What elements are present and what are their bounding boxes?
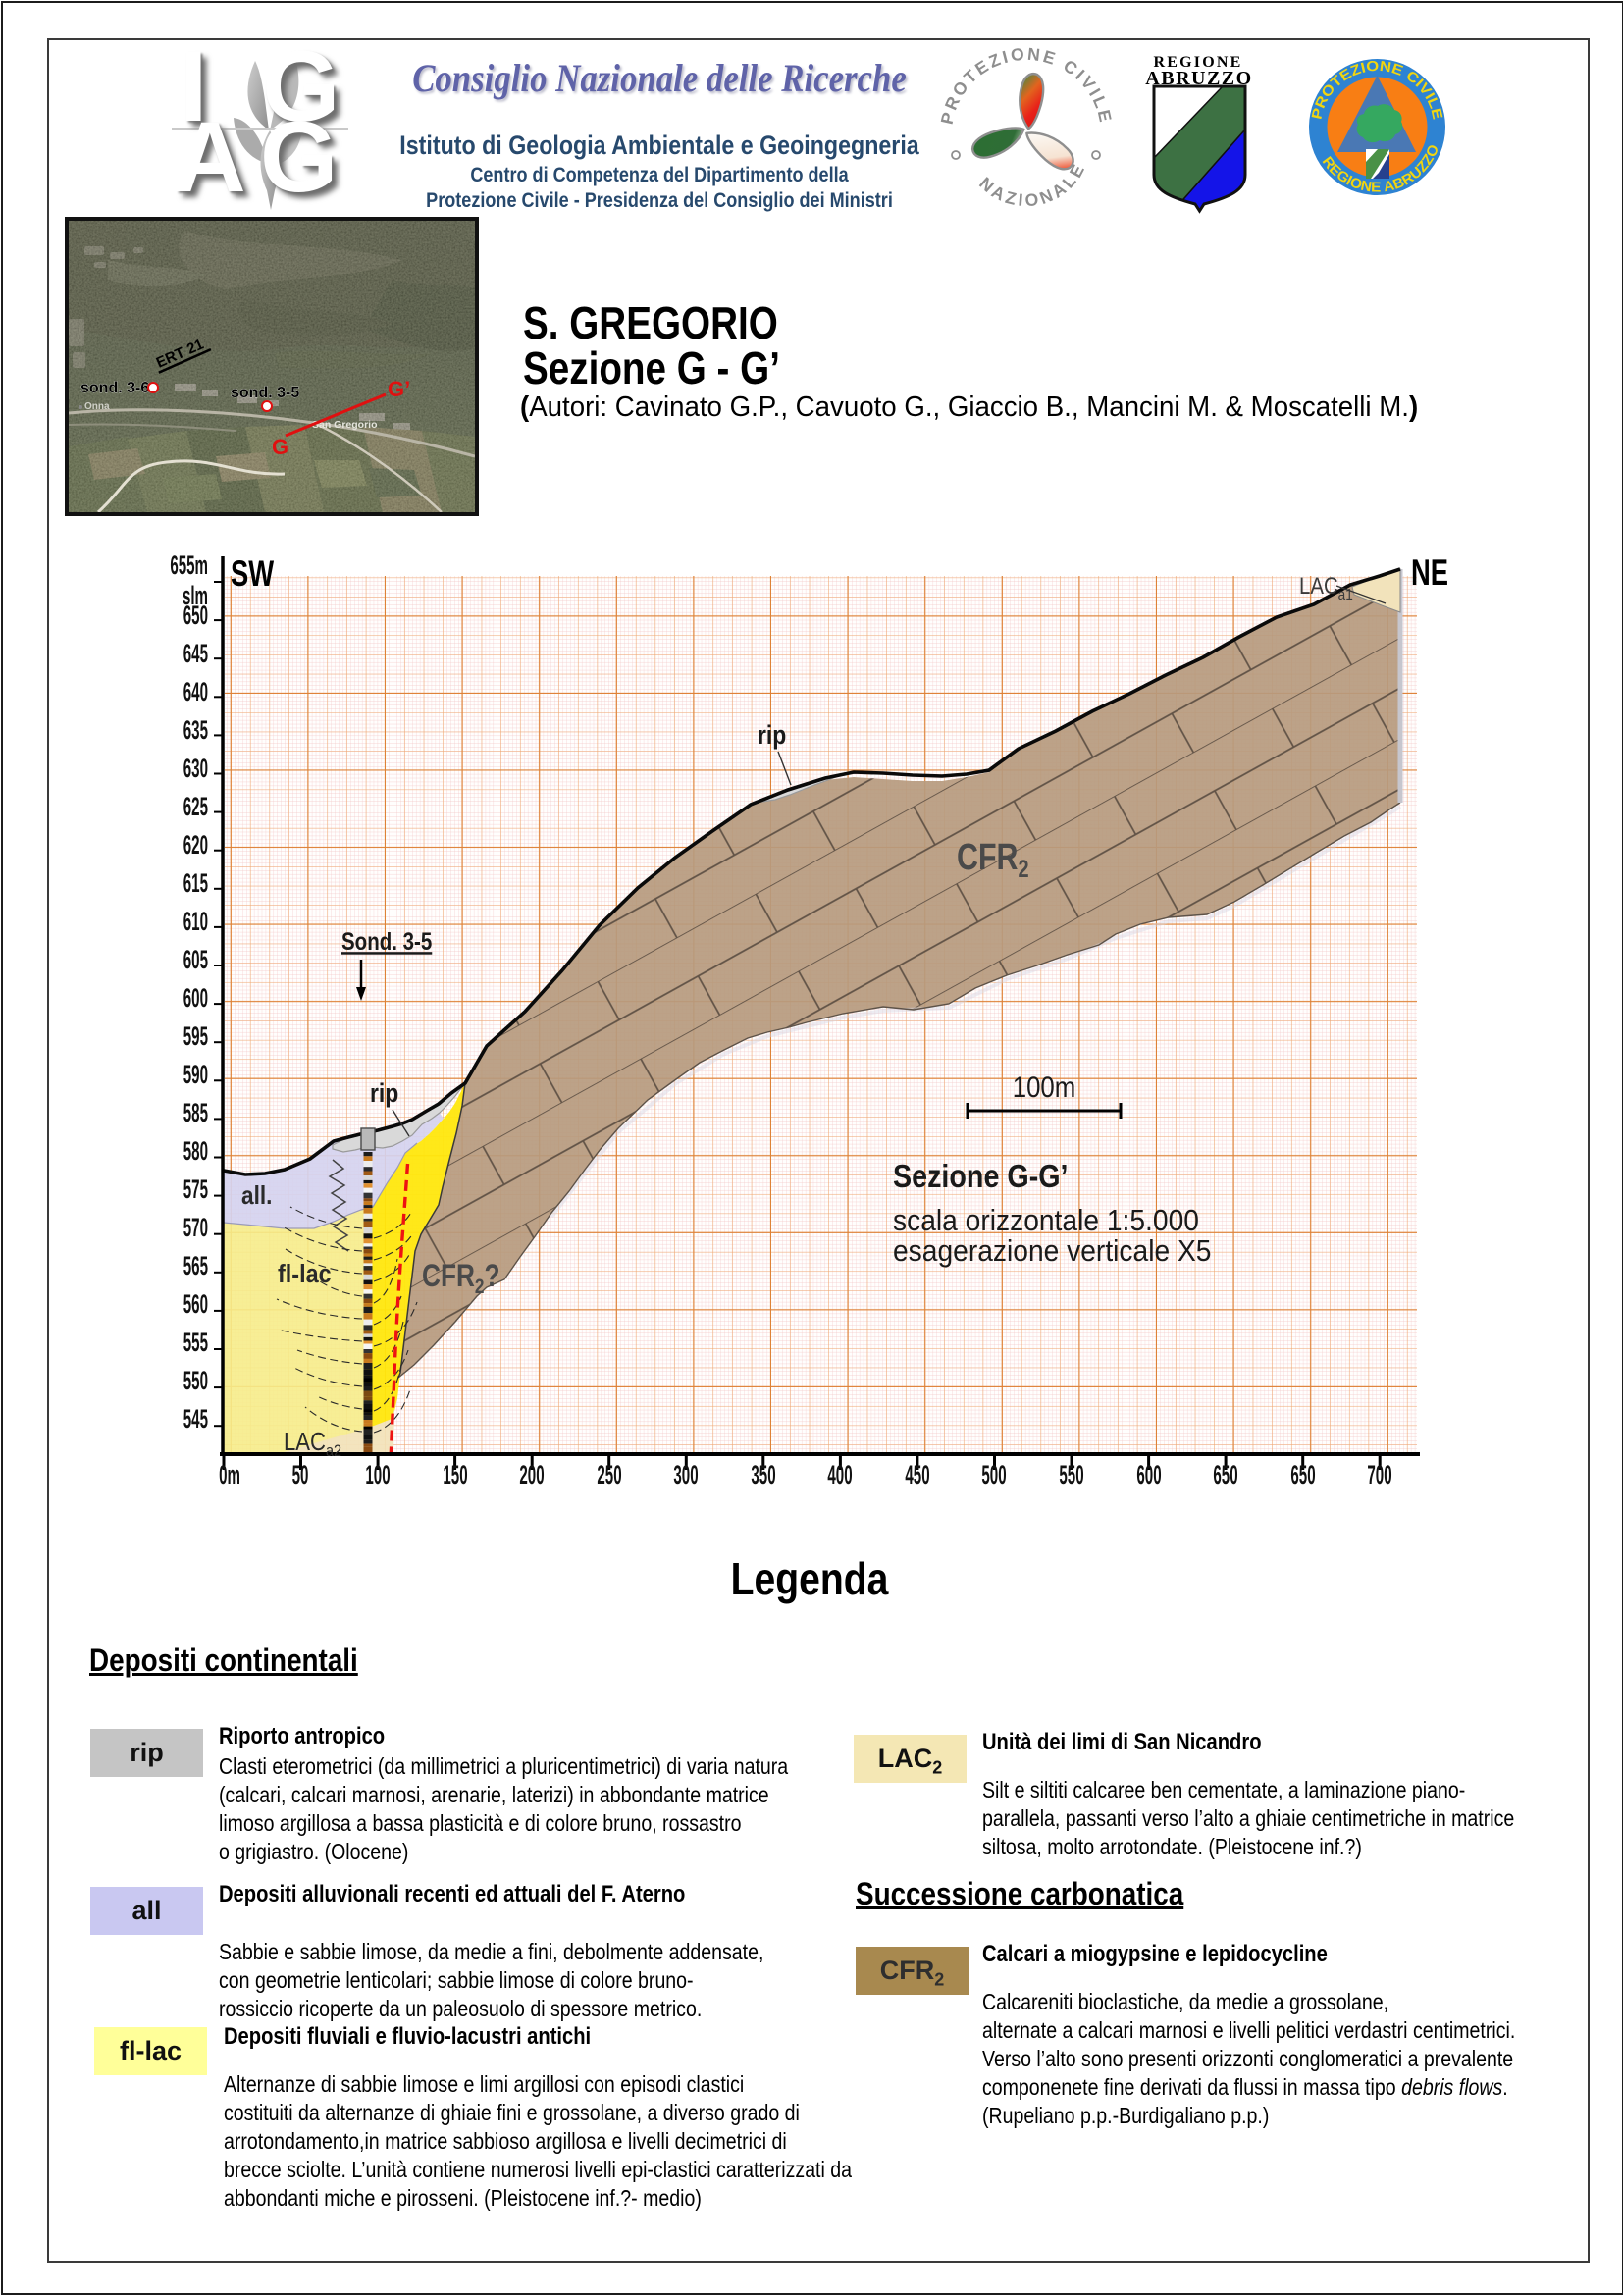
- svg-text:610: 610: [183, 906, 208, 936]
- svg-text:600: 600: [1136, 1459, 1161, 1489]
- svg-text:NE: NE: [1411, 552, 1448, 593]
- svg-text:Sond. 3-5: Sond. 3-5: [341, 927, 433, 955]
- svg-text:700: 700: [1367, 1459, 1391, 1489]
- svg-text:500: 500: [981, 1459, 1006, 1489]
- svg-text:Sezione G-G’: Sezione G-G’: [893, 1158, 1069, 1194]
- svg-text:scala orizzontale 1:5.000: scala orizzontale 1:5.000: [893, 1204, 1199, 1238]
- svg-text:100m: 100m: [1013, 1070, 1076, 1103]
- svg-text:640: 640: [183, 676, 208, 706]
- svg-text:570: 570: [183, 1212, 208, 1242]
- svg-text:650: 650: [1213, 1459, 1237, 1489]
- svg-text:350: 350: [751, 1459, 775, 1489]
- svg-text:G’: G’: [388, 377, 410, 401]
- svg-text:560: 560: [183, 1288, 208, 1319]
- svg-text:645: 645: [183, 638, 208, 668]
- svg-text:Onna: Onna: [84, 401, 110, 412]
- svg-text:450: 450: [905, 1459, 929, 1489]
- svg-text:600: 600: [183, 982, 208, 1013]
- svg-text:50: 50: [292, 1459, 309, 1489]
- svg-text:sond. 3-5: sond. 3-5: [231, 385, 299, 401]
- svg-text:CFR2?: CFR2?: [422, 1260, 500, 1299]
- svg-text:585: 585: [183, 1097, 208, 1127]
- svg-text:fl-lac: fl-lac: [278, 1261, 332, 1288]
- svg-text:655m: 655m: [170, 549, 208, 580]
- svg-text:615: 615: [183, 867, 208, 898]
- svg-text:150: 150: [443, 1459, 467, 1489]
- svg-text:565: 565: [183, 1250, 208, 1280]
- svg-text:0m: 0m: [219, 1459, 240, 1489]
- svg-text:100: 100: [365, 1459, 390, 1489]
- svg-text:625: 625: [183, 791, 208, 821]
- svg-text:all.: all.: [241, 1182, 272, 1211]
- svg-text:580: 580: [183, 1135, 208, 1166]
- svg-text:605: 605: [183, 944, 208, 974]
- svg-text:545: 545: [183, 1403, 208, 1434]
- svg-text:rip: rip: [370, 1078, 398, 1108]
- svg-text:620: 620: [183, 829, 208, 860]
- svg-text:rip: rip: [758, 720, 786, 750]
- svg-text:630: 630: [183, 753, 208, 783]
- svg-text:G: G: [272, 435, 288, 459]
- svg-text:650: 650: [183, 600, 208, 630]
- svg-text:400: 400: [827, 1459, 852, 1489]
- svg-text:635: 635: [183, 714, 208, 745]
- svg-text:595: 595: [183, 1020, 208, 1051]
- svg-text:590: 590: [183, 1059, 208, 1089]
- svg-text:200: 200: [519, 1459, 544, 1489]
- svg-text:sond. 3-6: sond. 3-6: [80, 380, 149, 396]
- svg-text:550: 550: [183, 1365, 208, 1395]
- svg-text:esagerazione verticale X5: esagerazione verticale X5: [893, 1234, 1211, 1269]
- svg-text:550: 550: [1059, 1459, 1083, 1489]
- svg-text:650: 650: [1290, 1459, 1315, 1489]
- svg-text:250: 250: [597, 1459, 621, 1489]
- svg-text:300: 300: [673, 1459, 698, 1489]
- svg-text:575: 575: [183, 1174, 208, 1204]
- svg-text:SW: SW: [231, 553, 274, 594]
- svg-text:555: 555: [183, 1327, 208, 1357]
